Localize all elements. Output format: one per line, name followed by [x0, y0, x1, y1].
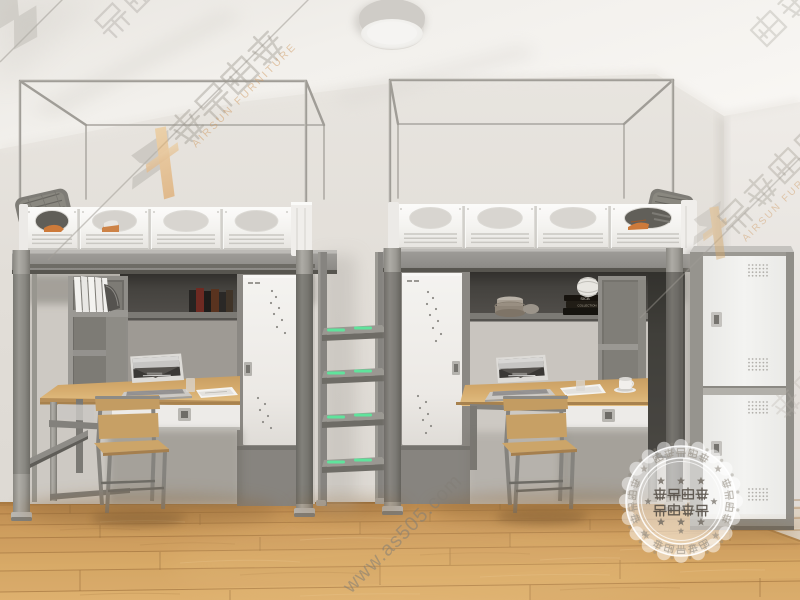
svg-text:COLLECTION: COLLECTION: [577, 304, 596, 308]
